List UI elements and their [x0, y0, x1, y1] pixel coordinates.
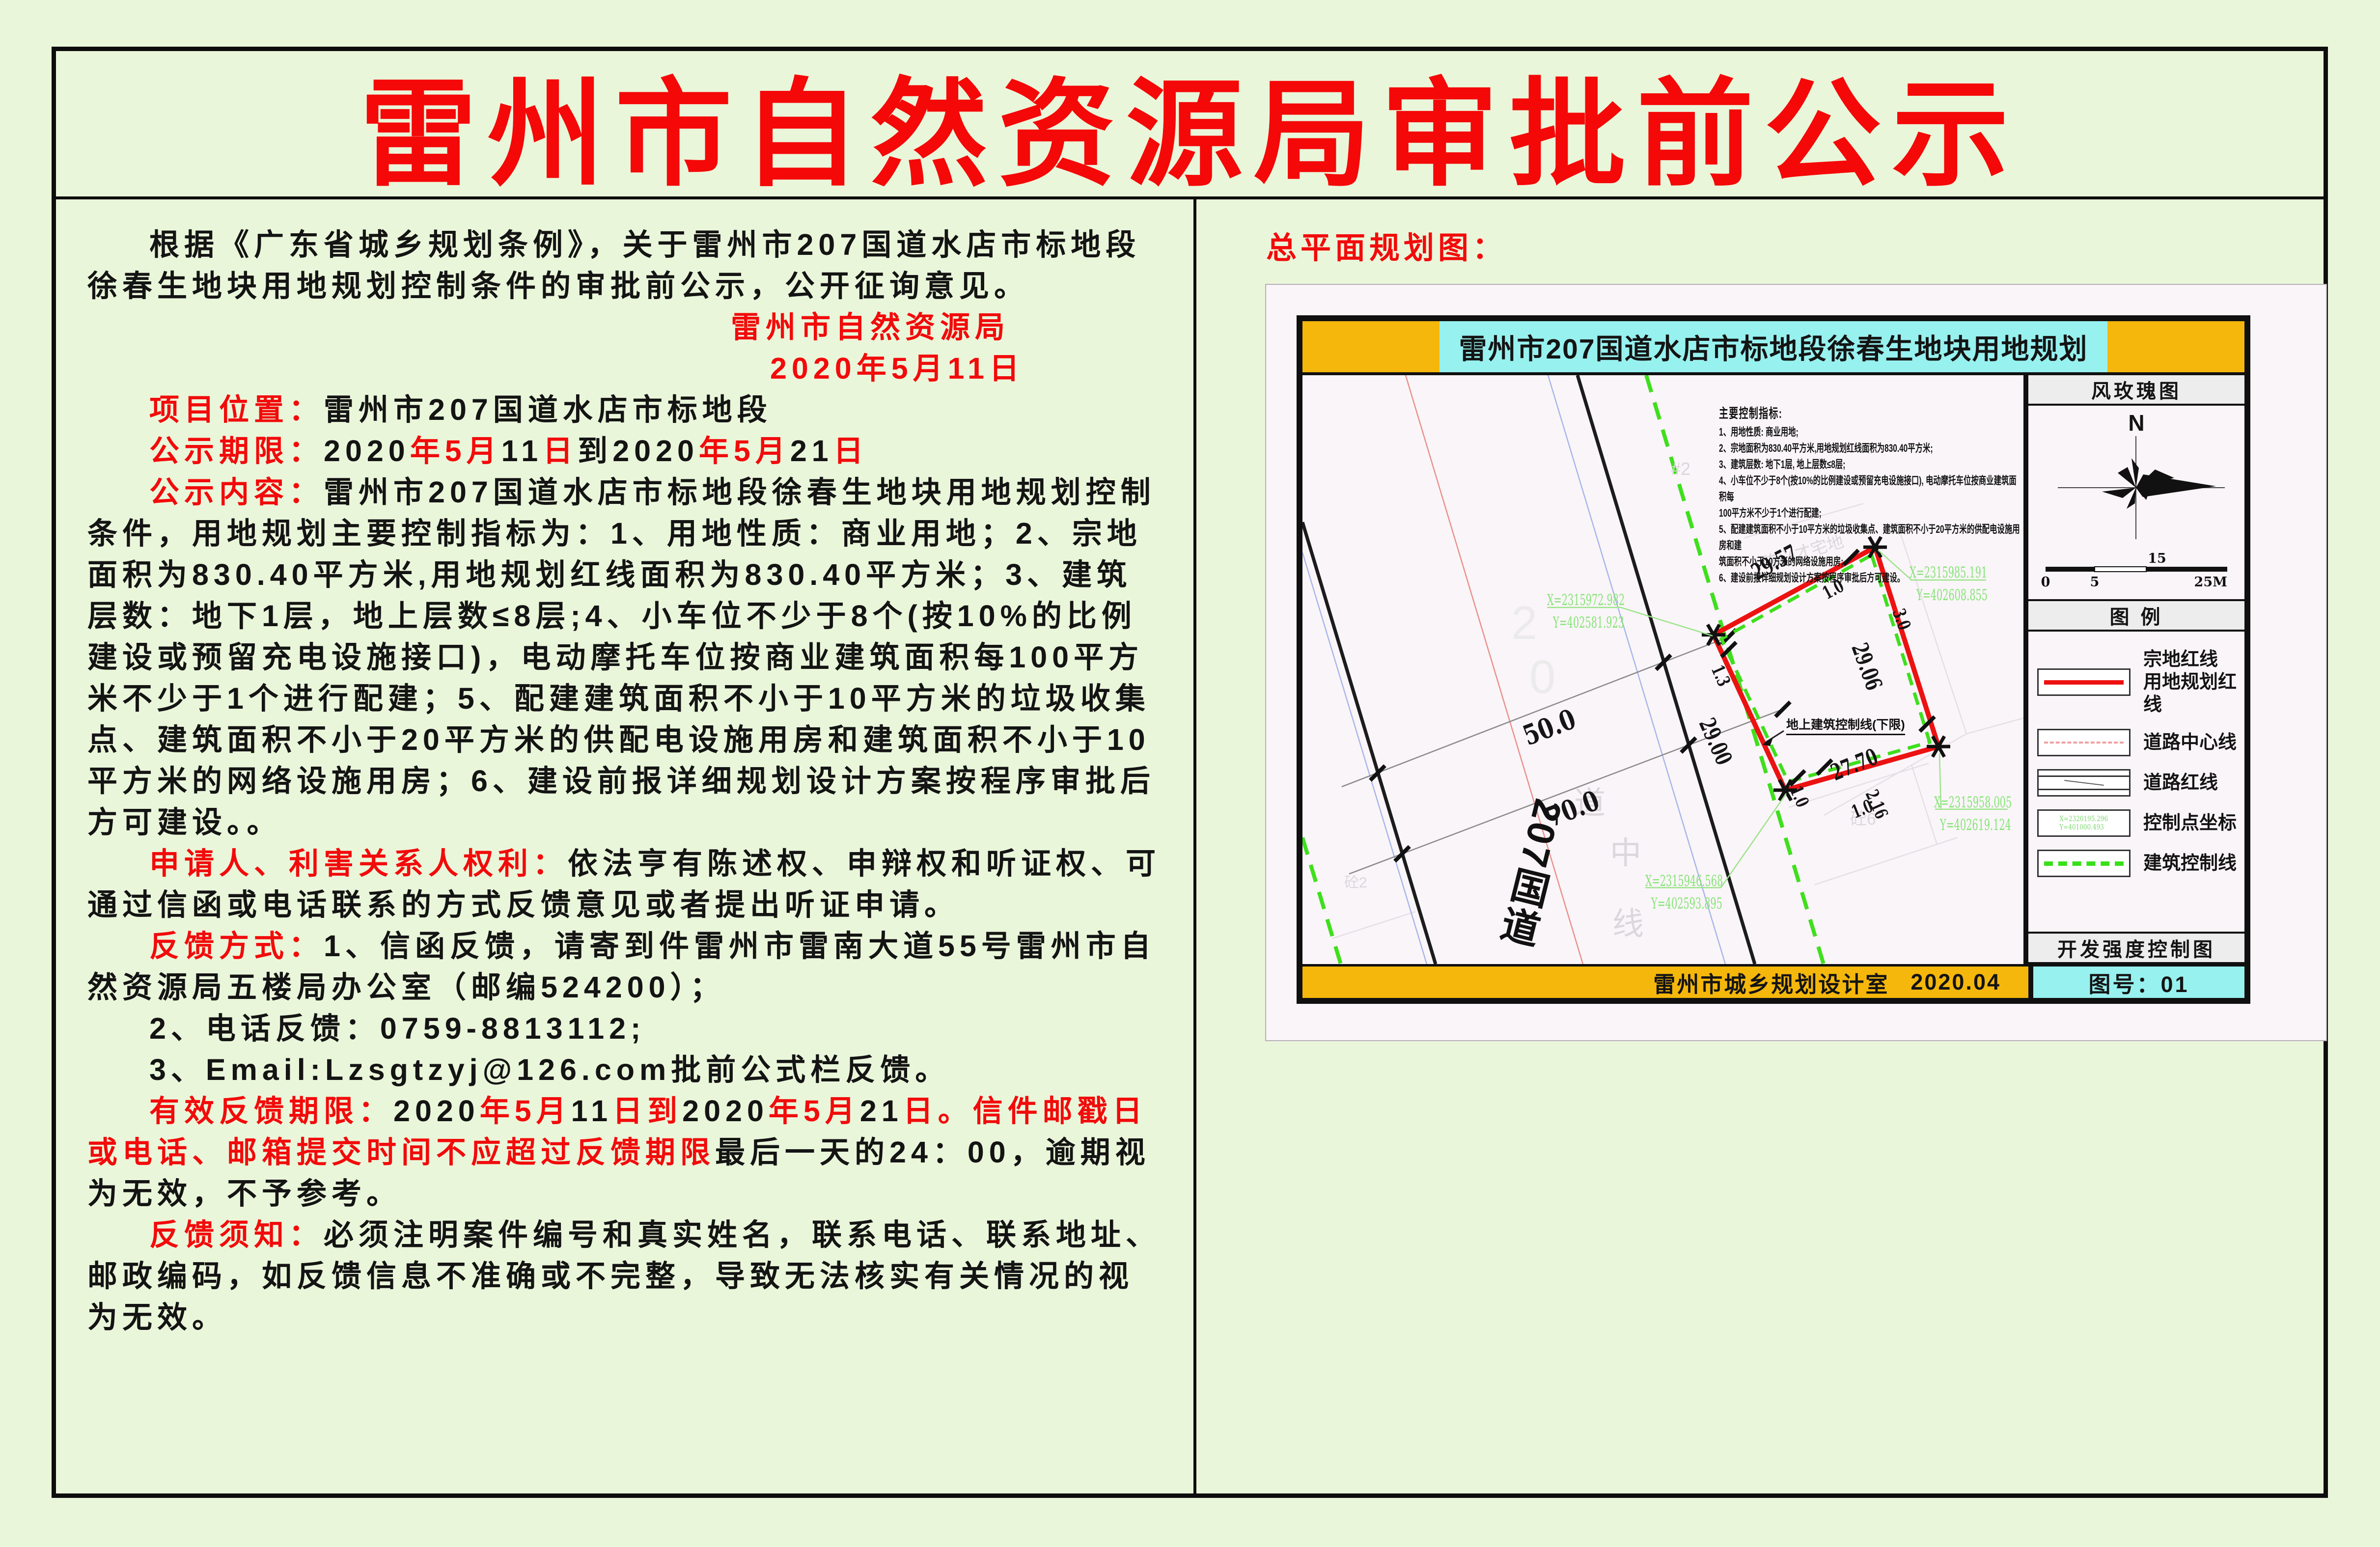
building-control-line-label: 地上建筑控制线(下限) — [1786, 715, 1905, 735]
plan-titlebar: 雷州市207国道水店市标地段徐春生地块用地规划 — [1302, 321, 2244, 375]
ghost-text: 中 — [1610, 828, 1641, 873]
coord-top-y: Y=402608.855 — [1916, 586, 1988, 604]
building-control-swatch-icon — [2037, 850, 2131, 877]
page-title: 雷州市自然资源局审批前公示 — [360, 39, 2020, 209]
legend-item-road-centerline: 道路中心线 — [2037, 729, 2244, 756]
plan-title: 雷州市207国道水店市标地段徐春生地块用地规划 — [1439, 321, 2107, 372]
sheet-number: 图号：01 — [2028, 967, 2244, 998]
issuer-signature: 雷州市自然资源局 — [87, 306, 1166, 348]
wind-rose-icon — [2028, 431, 2244, 544]
ghost-text: 2 — [1511, 596, 1537, 650]
parcel-redline-swatch-icon — [2037, 668, 2131, 696]
plan-column: 总平面规划图： 雷州市207国道水店市标地段徐春生地块用地规划 — [1196, 199, 2324, 1493]
plan-drawing-area: 2 0 道 中 线 陈兴才宅地 砼6 砼2 #2 主要控制指标: — [1302, 375, 2023, 964]
project-location: 项目位置：雷州市207国道水店市标地段 — [87, 389, 1166, 430]
feedback-phone: 2、电话反馈：0759-8813112; — [87, 1008, 1166, 1049]
coord-right-y: Y=402619.124 — [1940, 816, 2011, 834]
stakeholder-rights: 申请人、利害关系人权利：依法亨有陈述权、申辩权和听证权、可通过信函或电话联系的方… — [87, 843, 1166, 925]
development-intensity-header: 开发强度控制图 — [2028, 932, 2244, 964]
legend-header: 图 例 — [2028, 599, 2244, 632]
legend-label: 控制点坐标 — [2143, 812, 2237, 834]
feedback-deadline: 有效反馈期限：2020年5月11日到2020年5月21日。信件邮戳日或电话、邮箱… — [87, 1090, 1166, 1214]
sample-coord-x: X=2320195.296 — [2060, 815, 2108, 823]
plan-footer: 雷州市城乡规划设计室 2020.04 图号：01 — [1302, 964, 2244, 998]
plan-sidebar: 风玫瑰图 N — [2023, 375, 2244, 964]
road-redline-swatch-icon — [2037, 769, 2131, 797]
scale-15: 15 — [2148, 552, 2166, 566]
control-point-swatch-icon: X=2320195.296 Y=401000.493 — [2037, 809, 2131, 837]
scale-5: 5 — [2090, 575, 2100, 590]
coord-bottom-x: X=2315946.568 — [1645, 872, 1723, 890]
legend-item-control-point: X=2320195.296 Y=401000.493 控制点坐标 — [2037, 809, 2244, 837]
publicity-period: 公示期限：2020年5月11日到2020年5月21日 — [87, 430, 1166, 471]
issue-date: 2020年5月11日 — [87, 348, 1166, 389]
plan-frame: 雷州市207国道水店市标地段徐春生地块用地规划 — [1297, 315, 2250, 1004]
ghost-text: 线 — [1612, 899, 1644, 944]
scale-0: 0 — [2041, 575, 2050, 590]
feedback-email: 3、Email:Lzsgtzyj@126.com批前公式栏反馈。 — [87, 1049, 1166, 1090]
legend-label: 道路中心线 — [2143, 731, 2237, 754]
site-plan-image: 雷州市207国道水店市标地段徐春生地块用地规划 — [1265, 284, 2327, 1041]
coord-left-y: Y=402581.923 — [1553, 614, 1624, 632]
scale-25m: 25M — [2194, 575, 2227, 590]
coord-left-x: X=2315972.982 — [1547, 591, 1625, 609]
windrose-box: N — [2028, 406, 2244, 548]
feedback-notes: 反馈须知：必须注明案件编号和真实姓名，联系电话、联系地址、邮政编码，如反馈信息不… — [87, 1214, 1166, 1338]
plan-date: 2020.04 — [1910, 969, 2001, 995]
design-office-cell: 雷州市城乡规划设计室 2020.04 — [1302, 967, 2028, 998]
ghost-text: #2 — [1671, 459, 1690, 479]
legend-item-parcel-redline: 宗地红线 用地规划红线 — [2037, 648, 2244, 716]
coord-bottom-y: Y=402593.895 — [1651, 895, 1722, 912]
scale-bar-icon: 15 0 5 25M — [2028, 552, 2244, 596]
ghost-text: 砼2 — [1344, 870, 1367, 892]
legend-label: 用地规划红线 — [2143, 671, 2244, 716]
publicity-content: 公示内容：雷州市207国道水店市标地段徐春生地块用地规划控制条件，用地规划主要控… — [87, 471, 1166, 843]
ghost-text: 0 — [1529, 650, 1555, 704]
legend-item-road-redline: 道路红线 — [2037, 769, 2244, 797]
coord-right-x: X=2315958.005 — [1934, 794, 2012, 811]
intro-paragraph: 根据《广东省城乡规划条例》，关于雷州市207国道水店市标地段徐春生地块用地规划控… — [87, 224, 1166, 306]
coord-top-x: X=2315985.191 — [1910, 564, 1987, 581]
legend-label: 建筑控制线 — [2143, 852, 2237, 875]
sample-coord-y: Y=401000.493 — [2060, 823, 2108, 831]
feedback-method: 反馈方式：1、信函反馈，请寄到件雷州市雷南大道55号雷州市自然资源局五楼局办公室… — [87, 925, 1166, 1008]
plan-section-title: 总平面规划图： — [1266, 223, 1507, 267]
scale-bar: 15 0 5 25M — [2028, 548, 2244, 599]
notes-title: 主要控制指标: — [1719, 406, 2021, 422]
poster-header: 雷州市自然资源局审批前公示 — [56, 51, 2324, 199]
notice-poster: 雷州市自然资源局审批前公示 根据《广东省城乡规划条例》，关于雷州市207国道水店… — [52, 47, 2328, 1498]
legend-label: 道路红线 — [2143, 772, 2218, 794]
windrose-header: 风玫瑰图 — [2028, 375, 2244, 406]
notice-text-column: 根据《广东省城乡规划条例》，关于雷州市207国道水店市标地段徐春生地块用地规划控… — [56, 199, 1196, 1493]
legend-item-building-control-line: 建筑控制线 — [2037, 850, 2244, 877]
content-columns: 根据《广东省城乡规划条例》，关于雷州市207国道水店市标地段徐春生地块用地规划控… — [56, 199, 2324, 1493]
design-office-name: 雷州市城乡规划设计室 — [1653, 967, 1889, 998]
road-centerline-swatch-icon — [2037, 729, 2131, 756]
legend-list: 宗地红线 用地规划红线 道路中心线 道 — [2028, 632, 2244, 932]
legend-label: 宗地红线 — [2143, 648, 2244, 671]
